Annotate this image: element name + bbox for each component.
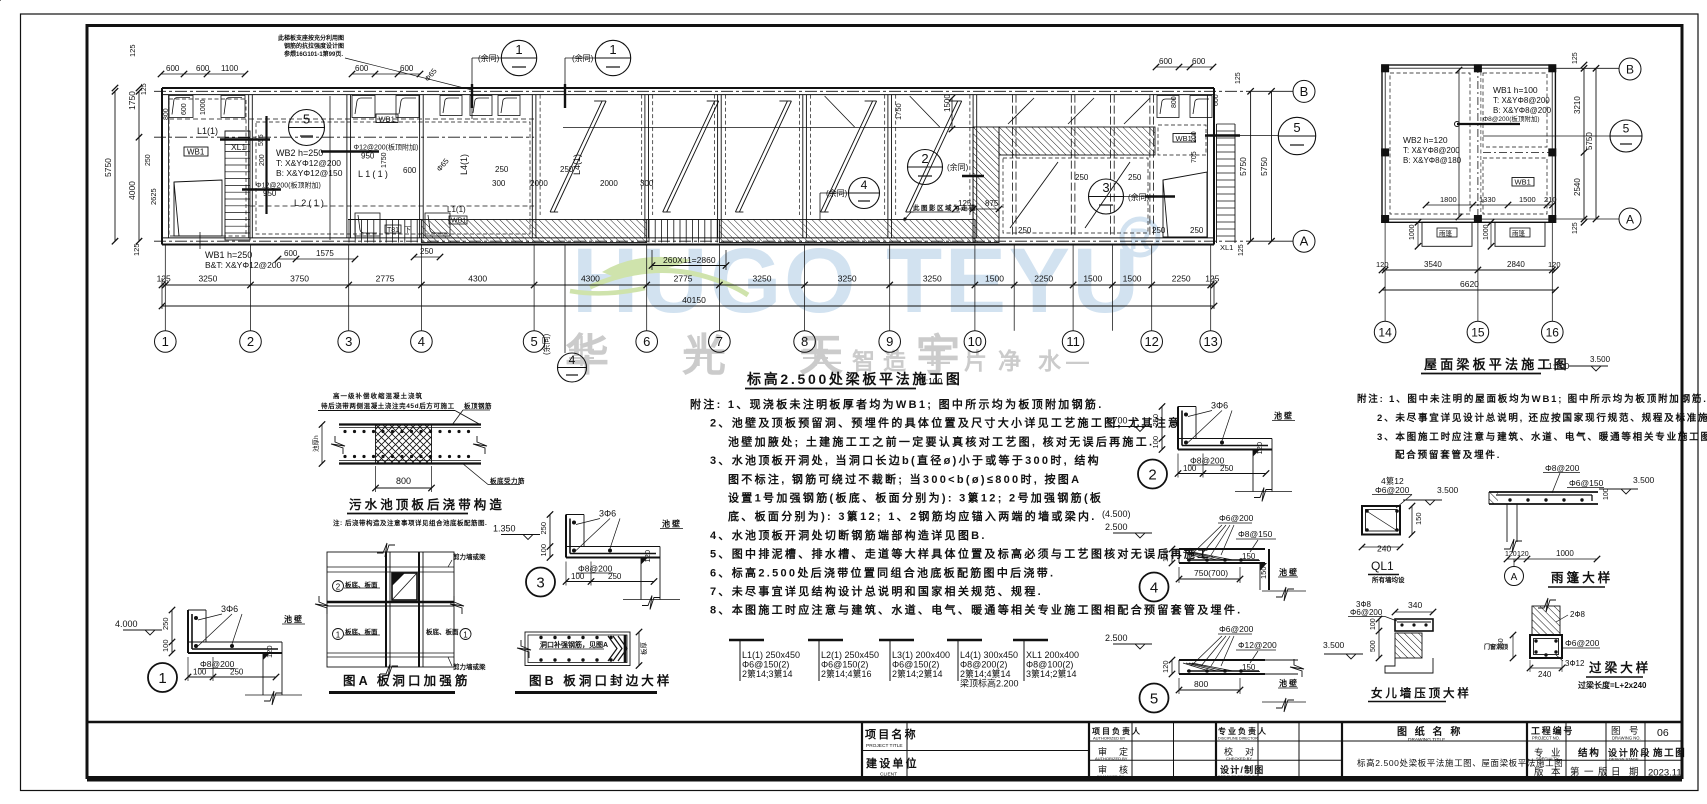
svg-text:5: 5: [530, 334, 537, 349]
svg-text:Φ8@150: Φ8@150: [1238, 529, 1273, 539]
svg-text:3、水池顶板开洞处, 当洞口长边b(直径ø)小于或等于300: 3、水池顶板开洞处, 当洞口长边b(直径ø)小于或等于300时, 结构: [710, 453, 1101, 467]
svg-text:3.500: 3.500: [1323, 640, 1345, 650]
svg-text:120: 120: [1517, 551, 1529, 558]
svg-text:3、本图施工时应注意与建筑、水道、电气、暖通等相关专业施工图: 3、本图施工时应注意与建筑、水道、电气、暖通等相关专业施工图相: [1377, 431, 1707, 443]
svg-text:L1(1) 250x450: L1(1) 250x450: [742, 650, 800, 660]
svg-text:950: 950: [361, 152, 375, 161]
svg-text:SPECIALTY: SPECIALTY: [1536, 757, 1559, 762]
svg-text:Φ6@200: Φ6@200: [1375, 485, 1410, 495]
svg-text:WB1: WB1: [187, 148, 205, 157]
svg-text:125: 125: [1235, 72, 1242, 84]
svg-text:4300: 4300: [581, 274, 600, 284]
svg-text:板厚: 板厚: [639, 642, 648, 656]
svg-text:图B 板洞口封边大样: 图B 板洞口封边大样: [529, 673, 673, 688]
svg-text:设置1号加强钢筋(板底、板面分别为): 3䉂12; 2号加强: 设置1号加强钢筋(板底、板面分别为): 3䉂12; 2号加强钢筋(板: [728, 491, 1103, 505]
svg-text:附注: 1、图中未注明的屋面板均为WB1; 图中所示均为板顶: 附注: 1、图中未注明的屋面板均为WB1; 图中所示均为板顶附加钢筋.: [1357, 393, 1707, 405]
svg-text:2540: 2540: [1573, 178, 1582, 196]
svg-text:600: 600: [1159, 57, 1173, 66]
svg-text:水: 水: [1038, 348, 1062, 374]
svg-text:池壁: 池壁: [1274, 411, 1294, 421]
svg-text:120: 120: [643, 550, 652, 563]
svg-text:250: 250: [1190, 226, 1204, 235]
svg-text:5: 5: [1293, 120, 1300, 135]
svg-text:3Φ6: 3Φ6: [1211, 401, 1228, 411]
svg-text:2: 2: [336, 583, 341, 592]
svg-text:WB1 h=100: WB1 h=100: [1493, 85, 1538, 95]
svg-text:图 纸 名 称: 图 纸 名 称: [1397, 725, 1463, 738]
svg-text:250: 250: [1220, 464, 1234, 473]
svg-text:240: 240: [1377, 544, 1391, 554]
svg-text:专业负责人: 专业负责人: [1218, 726, 1268, 736]
svg-text:1: 1: [463, 631, 468, 640]
svg-text:1000: 1000: [200, 99, 207, 115]
svg-text:版: 版: [1598, 766, 1608, 778]
svg-text:工程编号: 工程编号: [1531, 725, 1574, 736]
svg-text:125: 125: [141, 83, 148, 95]
svg-text:3250: 3250: [198, 274, 217, 284]
svg-text:EXAMINED BY: EXAMINED BY: [1097, 774, 1125, 779]
svg-text:250: 250: [145, 154, 152, 166]
svg-text:日: 日: [1611, 767, 1621, 778]
svg-text:项目负责人: 项目负责人: [1092, 726, 1142, 736]
svg-text:15: 15: [1471, 326, 1485, 340]
svg-text:项目名称: 项目名称: [865, 727, 918, 741]
svg-text:120: 120: [1376, 260, 1389, 269]
svg-text:XL1: XL1: [231, 142, 246, 152]
svg-text:下: 下: [404, 226, 411, 234]
svg-text:250: 250: [1075, 173, 1089, 182]
svg-text:250: 250: [420, 247, 434, 256]
svg-text:3250: 3250: [923, 274, 942, 284]
svg-text:11: 11: [1066, 334, 1080, 349]
svg-text:4: 4: [1150, 580, 1158, 597]
svg-text:Ф12@200: Ф12@200: [1238, 640, 1277, 650]
svg-text:2775: 2775: [376, 274, 395, 284]
svg-text:5750: 5750: [1238, 157, 1248, 176]
svg-text:4: 4: [861, 178, 868, 192]
svg-text:250: 250: [161, 617, 170, 630]
svg-text:250: 250: [1018, 226, 1032, 235]
svg-text:3250: 3250: [838, 274, 857, 284]
svg-text:3250: 3250: [753, 274, 772, 284]
svg-text:555: 555: [258, 134, 265, 146]
svg-text:建设单位: 建设单位: [866, 756, 919, 770]
svg-text:2.500: 2.500: [1105, 633, 1128, 643]
svg-text:板底受力筋: 板底受力筋: [490, 476, 525, 485]
svg-text:剪力墙或梁: 剪力墙或梁: [453, 662, 486, 671]
svg-text:6: 6: [643, 334, 650, 349]
svg-text:9: 9: [886, 334, 893, 349]
svg-text:施工图: 施工图: [1653, 747, 1686, 759]
svg-text:剪力墙或梁: 剪力墙或梁: [453, 552, 486, 561]
svg-text:250: 250: [230, 668, 244, 677]
svg-text:600: 600: [284, 249, 298, 258]
svg-text:100: 100: [571, 572, 585, 581]
svg-text:WB1: WB1: [1176, 134, 1192, 143]
svg-text:600: 600: [1192, 57, 1206, 66]
svg-text:2000: 2000: [530, 179, 548, 188]
svg-text:L1(1): L1(1): [447, 205, 466, 214]
svg-text:1000: 1000: [1483, 224, 1490, 240]
svg-text:06: 06: [1657, 727, 1669, 739]
svg-text:污水池顶板后浇带构造: 污水池顶板后浇带构造: [349, 497, 505, 512]
svg-text:100: 100: [1603, 488, 1610, 500]
svg-text:池壁加腋处; 土建施工工之前一定要认真核对工艺图, 核对无误: 池壁加腋处; 土建施工工之前一定要认真核对工艺图, 核对无误后再施工.: [728, 434, 1154, 448]
svg-text:3540: 3540: [1424, 260, 1442, 269]
svg-text:4000: 4000: [127, 181, 137, 200]
svg-text:5750: 5750: [1585, 132, 1594, 150]
svg-text:结构: 结构: [1577, 747, 1601, 759]
svg-text:3750: 3750: [290, 274, 309, 284]
svg-text:500: 500: [1370, 640, 1377, 652]
svg-text:DESIGNED/DRAWN BY: DESIGNED/DRAWN BY: [1218, 775, 1258, 779]
svg-text:参煨16G101-1第99页.: 参煨16G101-1第99页.: [283, 50, 343, 58]
svg-text:钢筋的抗拉强度设计图: 钢筋的抗拉强度设计图: [284, 42, 344, 50]
svg-text:125: 125: [1205, 274, 1219, 284]
svg-text:B: X&YΦ8@180: B: X&YΦ8@180: [1403, 156, 1462, 165]
svg-text:T: X&YΦ12@200: T: X&YΦ12@200: [276, 158, 341, 168]
svg-text:200: 200: [259, 154, 266, 166]
svg-text:所有墙均设: 所有墙均设: [1372, 575, 1405, 584]
svg-text:Φ12@200(板顶附加): Φ12@200(板顶附加): [354, 143, 419, 152]
svg-text:250: 250: [1152, 226, 1166, 235]
svg-text:5: 5: [1150, 691, 1158, 708]
svg-text:1: 1: [609, 42, 616, 57]
svg-text:1.700: 1.700: [1105, 416, 1128, 426]
svg-text:8: 8: [801, 334, 808, 349]
svg-text:600: 600: [355, 64, 369, 73]
svg-text:Φ8@200: Φ8@200: [1545, 463, 1580, 473]
svg-text:210: 210: [1544, 195, 1557, 204]
svg-text:3Ф12: 3Ф12: [1565, 659, 1585, 668]
svg-text:120: 120: [265, 645, 274, 658]
svg-text:250: 250: [495, 165, 509, 174]
svg-text:PROJECT NO.: PROJECT NO.: [1532, 736, 1560, 741]
svg-text:L4(1): L4(1): [572, 154, 582, 175]
svg-text:100: 100: [539, 544, 548, 557]
svg-text:150: 150: [1259, 566, 1268, 579]
svg-text:600: 600: [166, 64, 180, 73]
svg-text:875: 875: [985, 199, 999, 208]
svg-text:B: B: [1300, 84, 1309, 99]
svg-text:100: 100: [1183, 464, 1197, 473]
svg-text:150: 150: [1161, 549, 1170, 562]
svg-text:Φ6@150(2): Φ6@150(2): [821, 660, 868, 670]
svg-text:10: 10: [968, 334, 982, 349]
svg-text:Φ8@200(板顶附加): Φ8@200(板顶附加): [1483, 114, 1540, 123]
svg-text:底、板面分别为): 3䉂12; 1、2钢筋均应锚入两端的墙或: 底、板面分别为): 3䉂12; 1、2钢筋均应锚入两端的墙或梁内.: [728, 509, 1097, 523]
svg-text:100: 100: [161, 639, 170, 652]
svg-text:设计/制图: 设计/制图: [1220, 764, 1265, 775]
svg-text:13: 13: [1203, 334, 1217, 349]
svg-text:125: 125: [958, 199, 972, 208]
svg-text:(余同): (余同): [541, 333, 551, 355]
svg-text:2: 2: [921, 151, 928, 166]
svg-text:L2(1) 250x450: L2(1) 250x450: [821, 650, 879, 660]
svg-text:6620: 6620: [1460, 279, 1479, 289]
svg-text:5750: 5750: [1259, 157, 1269, 176]
svg-text:XL1 200x400: XL1 200x400: [1026, 650, 1079, 660]
svg-text:5750: 5750: [103, 158, 113, 177]
svg-text:150: 150: [1242, 663, 1256, 672]
svg-text:3.500: 3.500: [1437, 485, 1459, 495]
svg-text:Φ6@150(2): Φ6@150(2): [892, 660, 939, 670]
svg-text:过梁长度=L+2x240: 过梁长度=L+2x240: [1578, 680, 1647, 690]
svg-text:(4.500): (4.500): [1102, 509, 1131, 519]
svg-text:1: 1: [158, 670, 166, 687]
svg-text:705: 705: [1191, 151, 1198, 163]
svg-text:3Φ6: 3Φ6: [221, 604, 238, 614]
svg-text:Φ6@200: Φ6@200: [1565, 638, 1600, 648]
svg-text:1000: 1000: [1556, 549, 1574, 558]
svg-text:800: 800: [396, 476, 411, 486]
svg-text:待后浇带两侧混凝土浇注完45d后方可施工: 待后浇带两侧混凝土浇注完45d后方可施工: [321, 401, 455, 410]
svg-text:Φ6@200: Φ6@200: [1219, 624, 1254, 634]
svg-text:B: X&YΦ12@150: B: X&YΦ12@150: [276, 168, 343, 178]
svg-text:125: 125: [1572, 52, 1579, 64]
svg-text:260X11=2860: 260X11=2860: [663, 255, 716, 265]
svg-text:4: 4: [569, 353, 576, 367]
svg-text:注: 后浇带构造及注意事项详见组合池底板配筋图.: 注: 后浇带构造及注意事项详见组合池底板配筋图.: [333, 518, 487, 527]
svg-text:120: 120: [1505, 551, 1517, 558]
svg-text:250: 250: [539, 522, 548, 535]
svg-text:L1(1): L1(1): [197, 126, 218, 136]
svg-text:DRAWING TITLE: DRAWING TITLE: [1408, 737, 1445, 743]
svg-text:1: 1: [336, 631, 341, 640]
svg-text:此梯板支座按充分利用图: 此梯板支座按充分利用图: [278, 34, 344, 42]
svg-text:2Ф8: 2Ф8: [1570, 610, 1586, 619]
svg-text:DATE: DATE: [1622, 776, 1633, 781]
svg-text:2䉂14;3䉂14: 2䉂14;3䉂14: [742, 668, 793, 679]
svg-text:L3(1) 200x400: L3(1) 200x400: [892, 650, 950, 660]
svg-text:附注: 1、现浇板未注明板厚者均为WB1; 图中所示均为板顶: 附注: 1、现浇板未注明板厚者均为WB1; 图中所示均为板顶附加钢筋.: [690, 397, 1104, 411]
svg-text:1000: 1000: [1409, 224, 1416, 240]
svg-text:750(700): 750(700): [1194, 568, 1228, 578]
svg-text:3.500: 3.500: [1590, 355, 1611, 364]
svg-text:A: A: [1511, 572, 1518, 583]
svg-text:120: 120: [1548, 260, 1561, 269]
svg-text:1330: 1330: [1479, 195, 1496, 204]
svg-text:池壁: 池壁: [1279, 567, 1299, 577]
svg-text:2䉂14;4䉂14: 2䉂14;4䉂14: [960, 668, 1011, 679]
svg-text:2023.11: 2023.11: [1648, 768, 1682, 779]
svg-text:150: 150: [1498, 638, 1505, 650]
svg-text:WB1: WB1: [1515, 178, 1531, 187]
svg-text:VERSION: VERSION: [1538, 776, 1557, 781]
svg-text:240: 240: [1538, 670, 1552, 679]
svg-text:板底、板面: 板底、板面: [426, 627, 459, 636]
svg-text:L4(1): L4(1): [459, 154, 469, 175]
svg-text:3Φ6: 3Φ6: [599, 509, 616, 519]
svg-text:A: A: [1626, 213, 1634, 227]
svg-text:150: 150: [1242, 552, 1256, 561]
svg-text:600: 600: [1213, 94, 1220, 106]
svg-text:3210: 3210: [1573, 96, 1582, 114]
svg-text:DESIGN STAGE: DESIGN STAGE: [1609, 757, 1639, 762]
svg-text:配合预留套管及埋件.: 配合预留套管及埋件.: [1395, 449, 1501, 461]
svg-text:(余同): (余同): [947, 162, 969, 172]
svg-text:第: 第: [1570, 766, 1580, 778]
svg-text:1750: 1750: [381, 152, 388, 168]
svg-text:WB2 h=250: WB2 h=250: [276, 148, 323, 158]
svg-text:6、标高2.500处后浇带位置同组合池底板配筋图中后浇带.: 6、标高2.500处后浇带位置同组合池底板配筋图中后浇带.: [710, 565, 1055, 579]
svg-text:7、未尽事宜详见结构设计总说明和国家相关规范、规程.: 7、未尽事宜详见结构设计总说明和国家相关规范、规程.: [710, 584, 1043, 598]
svg-text:池壁: 池壁: [1279, 678, 1299, 688]
svg-text:Φ8@200(2): Φ8@200(2): [960, 660, 1007, 670]
svg-text:1: 1: [515, 42, 522, 57]
svg-text:1500: 1500: [943, 94, 952, 112]
svg-text:125: 125: [132, 243, 141, 256]
svg-text:2775: 2775: [674, 274, 693, 284]
svg-text:WB1 h=250: WB1 h=250: [205, 250, 252, 260]
svg-text:4: 4: [418, 334, 425, 349]
svg-text:雨篷: 雨篷: [1439, 229, 1453, 238]
svg-text:100: 100: [1370, 618, 1377, 630]
svg-text:2625: 2625: [149, 188, 158, 205]
svg-text:板顶钢筋: 板顶钢筋: [464, 401, 492, 410]
svg-text:100: 100: [1151, 436, 1160, 449]
svg-text:B: B: [1626, 63, 1634, 77]
svg-text:Φ6@200: Φ6@200: [1219, 513, 1254, 523]
svg-text:B&T: X&YΦ12@200: B&T: X&YΦ12@200: [205, 260, 282, 270]
svg-text:雨篷: 雨篷: [1512, 229, 1526, 238]
svg-text:图不标注, 钢筋可绕过不裁断; 当300<b(ø)≤800时: 图不标注, 钢筋可绕过不裁断; 当300<b(ø)≤800时, 按图A: [728, 472, 1081, 486]
svg-text:Φ6@150: Φ6@150: [1569, 478, 1604, 488]
svg-text:40150: 40150: [682, 295, 706, 305]
svg-text:3: 3: [345, 334, 352, 349]
svg-text:250: 250: [608, 572, 622, 581]
svg-text:CHECKED BY: CHECKED BY: [1226, 756, 1252, 761]
svg-text:340: 340: [1408, 600, 1422, 610]
svg-text:600: 600: [181, 103, 188, 115]
svg-text:1500: 1500: [1519, 195, 1536, 204]
svg-text:16: 16: [1546, 326, 1560, 340]
svg-text:5: 5: [1623, 122, 1630, 136]
svg-text:CLIENT: CLIENT: [880, 772, 897, 778]
svg-text:125: 125: [157, 274, 171, 284]
svg-text:5: 5: [303, 112, 310, 127]
svg-text:800: 800: [1194, 679, 1208, 689]
svg-text:125: 125: [128, 44, 137, 57]
svg-text:1:100: 1:100: [921, 376, 943, 386]
svg-text:125: 125: [1572, 222, 1579, 234]
svg-text:2䉂14;4䉂16: 2䉂14;4䉂16: [821, 668, 872, 679]
svg-text:5、图中排泥槽、排水槽、走道等大样具体位置及标高必须与工艺图: 5、图中排泥槽、排水槽、走道等大样具体位置及标高必须与工艺图核对无误后再施工.: [710, 547, 1216, 561]
svg-text:T: X&YΦ8@200: T: X&YΦ8@200: [1403, 146, 1460, 155]
svg-text:Φ6@200: Φ6@200: [1350, 608, 1383, 617]
svg-text:池壁: 池壁: [284, 614, 304, 624]
svg-text:WB2 h=120: WB2 h=120: [1403, 135, 1448, 145]
svg-text:梁顶标高2.200: 梁顶标高2.200: [960, 678, 1019, 689]
svg-text:A: A: [1300, 234, 1309, 249]
svg-text:2: 2: [247, 334, 254, 349]
svg-text:1: 1: [162, 334, 169, 349]
svg-text:600: 600: [403, 166, 417, 175]
svg-text:2、未尽事宜详见设计总说明, 还应按国家现行规范、规程及标准: 2、未尽事宜详见设计总说明, 还应按国家现行规范、规程及标准施工.: [1377, 412, 1707, 424]
svg-text:L4(1) 300x450: L4(1) 300x450: [960, 650, 1018, 660]
svg-text:7: 7: [716, 334, 723, 349]
svg-text:标高2.500处梁板平法施工图、屋面梁板平法施工图: 标高2.500处梁板平法施工图、屋面梁板平法施工图: [1357, 758, 1563, 768]
svg-text:250: 250: [1151, 414, 1160, 427]
svg-text:3: 3: [1102, 180, 1109, 195]
svg-text:DRAWING NO.: DRAWING NO.: [1612, 736, 1641, 741]
svg-text:过梁大样: 过梁大样: [1589, 660, 1651, 675]
svg-text:8、本图施工时应注意与建筑、水道、电气、暖通等相关专业施工图: 8、本图施工时应注意与建筑、水道、电气、暖通等相关专业施工图相配合预留套管及埋件…: [710, 603, 1242, 617]
svg-text:3䉂14;2䉂14: 3䉂14;2䉂14: [1026, 668, 1077, 679]
svg-text:2840: 2840: [1507, 260, 1525, 269]
svg-text:2250: 2250: [1172, 274, 1191, 284]
svg-text:600: 600: [400, 64, 414, 73]
svg-text:Φ6@150(2): Φ6@150(2): [742, 660, 789, 670]
svg-text:200: 200: [1191, 131, 1198, 143]
svg-text:3: 3: [536, 575, 544, 592]
svg-text:AUTHORIZED BY: AUTHORIZED BY: [1093, 736, 1126, 741]
svg-text:一: 一: [1584, 767, 1594, 778]
svg-text:池厚h: 池厚h: [311, 435, 320, 452]
svg-text:800: 800: [1171, 96, 1178, 108]
svg-text:14: 14: [1378, 326, 1392, 340]
svg-text:300: 300: [640, 179, 654, 188]
svg-text:XL1: XL1: [1220, 243, 1233, 252]
svg-text:2250: 2250: [1034, 274, 1053, 284]
svg-text:洞口补强钢筋，见图A: 洞口补强钢筋，见图A: [540, 640, 608, 649]
svg-text:DISCIPLINE DIRECTOR: DISCIPLINE DIRECTOR: [1218, 737, 1258, 741]
svg-text:图A 板洞口加强筋: 图A 板洞口加强筋: [343, 673, 470, 688]
svg-text:1100: 1100: [221, 64, 239, 73]
svg-text:1750: 1750: [127, 91, 137, 110]
svg-text:1500: 1500: [1123, 274, 1142, 284]
svg-text:雨篷大样: 雨篷大样: [1551, 570, 1613, 585]
svg-text:300: 300: [492, 179, 506, 188]
svg-text:120: 120: [1255, 442, 1264, 455]
svg-text:4、水池顶板开洞处切断钢筋端部构造详见图B.: 4、水池顶板开洞处切断钢筋端部构造详见图B.: [710, 528, 987, 542]
svg-text:WB1: WB1: [379, 115, 395, 124]
svg-text:950: 950: [263, 189, 277, 198]
svg-text:1500: 1500: [1083, 274, 1102, 284]
svg-text:600: 600: [196, 64, 210, 73]
svg-text:4.000: 4.000: [115, 619, 138, 629]
svg-text:3.500: 3.500: [1633, 475, 1655, 485]
svg-text:AUTHORIZED BY: AUTHORIZED BY: [1095, 756, 1128, 761]
svg-text:净: 净: [998, 348, 1021, 374]
svg-text:120: 120: [1161, 660, 1170, 673]
svg-text:WB1: WB1: [451, 218, 466, 225]
svg-text:150: 150: [1414, 512, 1423, 525]
svg-text:女儿墙压顶大样: 女儿墙压顶大样: [1371, 686, 1472, 700]
svg-text:L2(1): L2(1): [294, 198, 326, 208]
svg-text:250: 250: [560, 165, 574, 174]
svg-text:T81: T81: [387, 227, 399, 234]
svg-text:4300: 4300: [468, 274, 487, 284]
svg-text:2: 2: [1148, 467, 1156, 484]
svg-text:1800: 1800: [1440, 195, 1457, 204]
svg-text:800: 800: [163, 108, 170, 120]
svg-text:L1(1): L1(1): [358, 169, 390, 179]
svg-text:2000: 2000: [600, 179, 618, 188]
svg-text:1500: 1500: [985, 274, 1004, 284]
svg-text:1.350: 1.350: [493, 524, 516, 534]
svg-text:QL1: QL1: [1371, 559, 1394, 573]
svg-text:2䉂14;2䉂14: 2䉂14;2䉂14: [892, 668, 943, 679]
svg-text:2.500: 2.500: [1105, 522, 1128, 532]
svg-text:125: 125: [1238, 244, 1245, 256]
svg-text:1750: 1750: [894, 103, 903, 120]
svg-text:1575: 1575: [316, 249, 334, 258]
svg-text:100: 100: [193, 668, 207, 677]
svg-text:PROJECT TITLE: PROJECT TITLE: [866, 743, 903, 749]
svg-text:高一级补偿收缩混凝土浇筑: 高一级补偿收缩混凝土浇筑: [333, 391, 423, 400]
svg-text:池壁: 池壁: [662, 519, 682, 529]
